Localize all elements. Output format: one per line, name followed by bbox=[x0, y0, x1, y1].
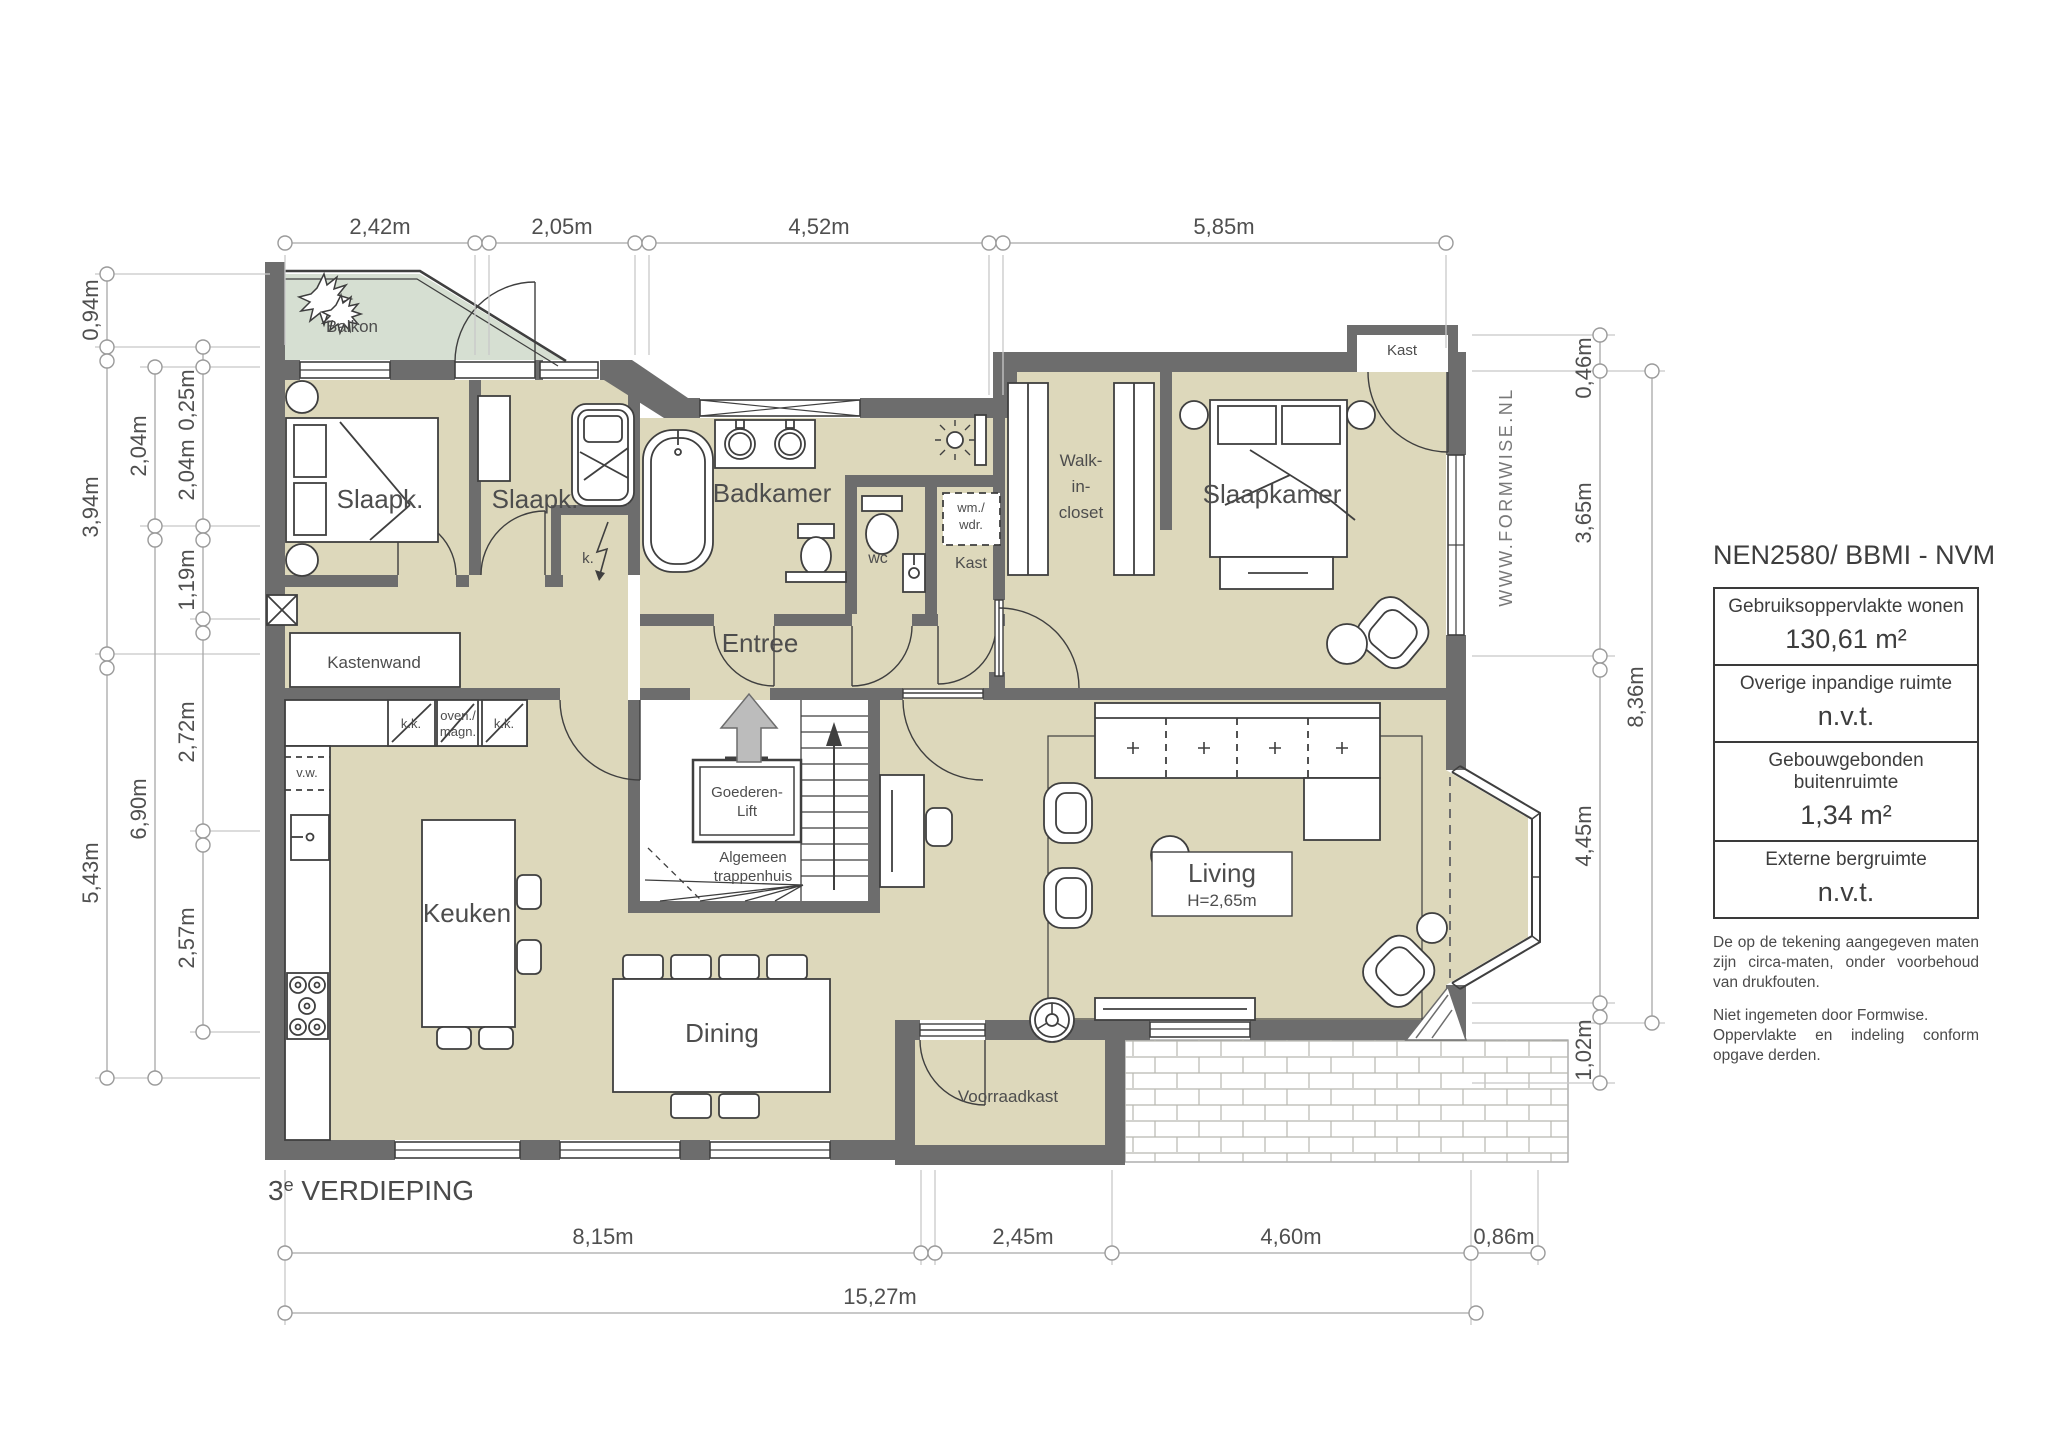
dim-right-inner-3: 4,45m bbox=[1571, 805, 1596, 866]
label-kk-2: k.k. bbox=[494, 716, 514, 731]
stool-2 bbox=[286, 544, 318, 576]
armchair-living-2 bbox=[1044, 868, 1092, 928]
dim-left-inner-1: 0,25m bbox=[174, 369, 199, 430]
label-vw: v.w. bbox=[296, 765, 317, 780]
label-dining: Dining bbox=[685, 1018, 759, 1048]
disclaimer-2a: Niet ingemeten door Formwise. bbox=[1713, 1006, 1979, 1026]
floorplan-page: Balkon Slaapk. Slaapk. Badkamer Entree w… bbox=[0, 0, 2048, 1448]
area-table: Gebruiksoppervlakte wonen 130,61 m² Over… bbox=[1713, 587, 1979, 919]
label-slaapk-1: Slaapk. bbox=[337, 484, 424, 514]
label-balkon: Balkon bbox=[326, 317, 378, 336]
stool-1 bbox=[286, 381, 318, 413]
bay-floor bbox=[1446, 770, 1528, 985]
dim-left-outer-2: 3,94m bbox=[78, 476, 103, 537]
dresser-master bbox=[1220, 557, 1333, 589]
table-row: Externe bergruimte n.v.t. bbox=[1715, 842, 1977, 917]
floor-name: VERDIEPING bbox=[294, 1175, 474, 1206]
row-label: Gebruiksoppervlakte wonen bbox=[1719, 596, 1973, 618]
armchair-living-1 bbox=[1044, 783, 1092, 843]
row-label: Overige inpandige ruimte bbox=[1719, 673, 1973, 695]
label-slaapkamer: Slaapkamer bbox=[1203, 479, 1342, 509]
dim-top-1: 2,42m bbox=[349, 214, 410, 239]
row-value: 130,61 m² bbox=[1719, 624, 1973, 655]
floor-number: 3 bbox=[268, 1175, 284, 1206]
dim-bottom-total: 15,27m bbox=[843, 1284, 916, 1309]
label-kast-hal: Kast bbox=[955, 555, 988, 572]
label-oven: oven./ bbox=[440, 708, 476, 723]
heater-x-box bbox=[267, 595, 297, 625]
dim-left-inner-5: 2,57m bbox=[174, 907, 199, 968]
label-kast-hoek: Kast bbox=[1387, 342, 1418, 359]
label-k: k. bbox=[582, 550, 594, 567]
dim-bottom-2: 2,45m bbox=[992, 1224, 1053, 1249]
row-value: n.v.t. bbox=[1719, 701, 1973, 732]
row-label: Externe bergruimte bbox=[1719, 849, 1973, 871]
nightstand-2 bbox=[1347, 401, 1375, 429]
formwise-watermark: WWW.FORMWISE.NL bbox=[1496, 387, 1516, 606]
label-wdr: wdr. bbox=[958, 517, 983, 532]
label-kk-1: k.k. bbox=[401, 716, 421, 731]
toilet-wc bbox=[862, 496, 902, 554]
dim-right-inner-2: 3,65m bbox=[1571, 482, 1596, 543]
stove bbox=[287, 973, 328, 1039]
dim-bottom-1: 8,15m bbox=[572, 1224, 633, 1249]
nightstand-1 bbox=[1180, 401, 1208, 429]
label-slaapk-2: Slaapk. bbox=[492, 484, 579, 514]
nen2580-panel: NEN2580/ BBMI - NVM Gebruiksoppervlakte … bbox=[1713, 540, 1979, 1066]
label-wc: wc bbox=[867, 550, 888, 567]
label-keuken: Keuken bbox=[423, 898, 511, 928]
dim-top-4: 5,85m bbox=[1193, 214, 1254, 239]
dim-bottom-4: 0,86m bbox=[1473, 1224, 1534, 1249]
table-row: Gebouwgebonden buitenruimte 1,34 m² bbox=[1715, 743, 1977, 842]
label-lift-2: Lift bbox=[737, 803, 758, 820]
label-wm: wm./ bbox=[956, 500, 985, 515]
fan-icon bbox=[1030, 998, 1074, 1042]
label-trappenhuis-1: Algemeen bbox=[719, 849, 787, 866]
dim-right-inner-1: 0,46m bbox=[1571, 337, 1596, 398]
row-value: 1,34 m² bbox=[1719, 800, 1973, 831]
dim-right-inner-4: 1,02m bbox=[1571, 1019, 1596, 1080]
dim-left-outer-3: 5,43m bbox=[78, 842, 103, 903]
kitchen-counter-left bbox=[285, 746, 330, 1140]
bed-double-1 bbox=[286, 418, 438, 542]
balcony-door-opening bbox=[455, 362, 535, 378]
terrace bbox=[1125, 1040, 1568, 1162]
row-value: n.v.t. bbox=[1719, 877, 1973, 908]
label-living: Living bbox=[1188, 858, 1256, 888]
table-row: Overige inpandige ruimte n.v.t. bbox=[1715, 666, 1977, 743]
label-walkin-2: in- bbox=[1072, 477, 1091, 496]
label-entree: Entree bbox=[722, 628, 799, 658]
label-badkamer: Badkamer bbox=[713, 478, 832, 508]
side-table-bay bbox=[1417, 913, 1447, 943]
bathtub bbox=[643, 430, 713, 572]
dim-left-mid-1: 2,04m bbox=[126, 415, 151, 476]
label-voorraadkast: Voorraadkast bbox=[958, 1087, 1058, 1106]
wardrobe-bed2 bbox=[478, 396, 510, 481]
dim-right-outer: 8,36m bbox=[1623, 666, 1648, 727]
wc-sink bbox=[903, 554, 925, 592]
dim-left-mid-2: 6,90m bbox=[126, 778, 151, 839]
floor-suffix: e bbox=[284, 1175, 294, 1195]
disclaimer-2b: Oppervlakte en indeling conform opgave d… bbox=[1713, 1026, 1979, 1066]
row-label: Gebouwgebonden buitenruimte bbox=[1719, 750, 1973, 794]
label-trappenhuis-2: trappenhuis bbox=[714, 868, 792, 885]
dim-left-outer-1: 0,94m bbox=[78, 279, 103, 340]
label-living-height: H=2,65m bbox=[1187, 891, 1256, 910]
dim-left-inner-4: 2,72m bbox=[174, 701, 199, 762]
dim-bottom-3: 4,60m bbox=[1260, 1224, 1321, 1249]
vanity-sinks bbox=[715, 420, 815, 468]
disclaimer-2: Niet ingemeten door Formwise. Oppervlakt… bbox=[1713, 1006, 1979, 1065]
label-magn: magn. bbox=[440, 724, 476, 739]
dim-top-2: 2,05m bbox=[531, 214, 592, 239]
dim-left-inner-3: 1,19m bbox=[174, 549, 199, 610]
dim-top-3: 4,52m bbox=[788, 214, 849, 239]
floor-title: 3e VERDIEPING bbox=[268, 1175, 474, 1206]
bed-single bbox=[572, 404, 634, 506]
side-table-master bbox=[1327, 624, 1367, 664]
label-lift-1: Goederen- bbox=[711, 784, 783, 801]
disclaimer-1: De op de tekening aangegeven maten zijn … bbox=[1713, 933, 1979, 992]
tv-sideboard bbox=[1095, 998, 1255, 1020]
label-walkin-3: closet bbox=[1059, 503, 1104, 522]
dim-left-inner-2: 2,04m bbox=[174, 439, 199, 500]
label-walkin-1: Walk- bbox=[1060, 451, 1103, 470]
panel-title: NEN2580/ BBMI - NVM bbox=[1713, 540, 1979, 571]
table-row: Gebruiksoppervlakte wonen 130,61 m² bbox=[1715, 589, 1977, 666]
label-kastenwand: Kastenwand bbox=[327, 653, 421, 672]
